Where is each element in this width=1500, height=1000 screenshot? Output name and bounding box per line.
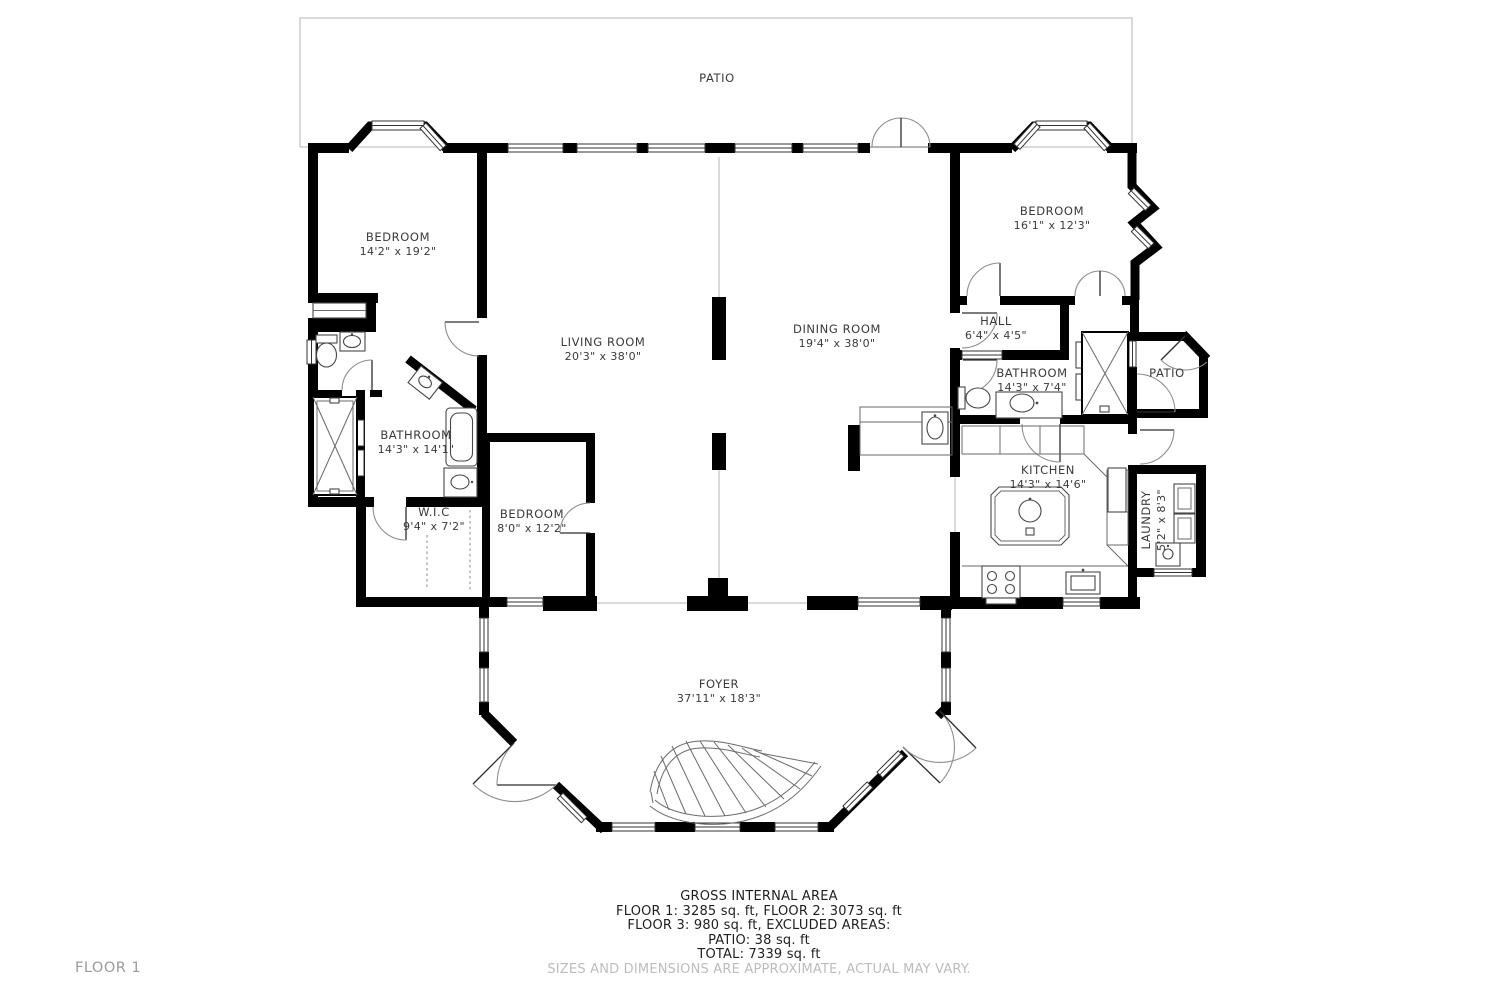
vanity-sink-icon (996, 392, 1062, 418)
room-dims-laundry: 5'2" x 8'3" (1155, 489, 1168, 551)
room-label-laundry: LAUNDRY (1139, 490, 1153, 549)
room-label-bedroom-right: BEDROOM (1020, 204, 1084, 218)
area-summary: GROSS INTERNAL AREA FLOOR 1: 3285 sq. ft… (0, 890, 1500, 978)
floor-number-label: FLOOR 1 (75, 960, 141, 976)
floor-plan-canvas: PATIO BEDROOM 14'2" x 19'2" LIVING ROOM … (0, 0, 1500, 1000)
room-dims-bathroom-left: 14'3" x 14'1" (378, 443, 455, 456)
room-label-bathroom-left: BATHROOM (380, 428, 451, 442)
room-label-foyer: FOYER (699, 677, 739, 691)
total-area: TOTAL: 7339 sq. ft (18, 948, 1500, 963)
room-label-dining: DINING ROOM (793, 322, 881, 336)
shower-icon (1082, 332, 1128, 415)
room-dims-living: 20'3" x 38'0" (565, 350, 642, 363)
room-dims-bathroom-right: 14'3" x 7'4" (997, 381, 1066, 394)
room-label-bedroom-small: BEDROOM (500, 507, 564, 521)
stove-icon (982, 566, 1020, 604)
floor-plan-drawing: PATIO BEDROOM 14'2" x 19'2" LIVING ROOM … (0, 0, 1500, 1000)
room-label-hall: HALL (980, 314, 1012, 328)
room-label-bathroom-right: BATHROOM (996, 366, 1067, 380)
room-dims-dining: 19'4" x 38'0" (799, 337, 876, 350)
floor1-floor2-areas: FLOOR 1: 3285 sq. ft, FLOOR 2: 3073 sq. … (18, 905, 1500, 920)
shower-icon (313, 397, 357, 495)
sink-icon (444, 468, 477, 497)
room-label-patio-top: PATIO (699, 71, 735, 85)
room-label-patio-right: PATIO (1149, 366, 1185, 380)
room-dims-bedroom-right: 16'1" x 12'3" (1014, 219, 1091, 232)
sink-icon (340, 332, 365, 351)
size-disclaimer: SIZES AND DIMENSIONS ARE APPROXIMATE, AC… (18, 963, 1500, 978)
staircase-icon (650, 741, 821, 824)
room-dims-wic: 9'4" x 7'2" (403, 520, 465, 533)
room-label-kitchen: KITCHEN (1021, 463, 1075, 477)
gross-internal-area-title: GROSS INTERNAL AREA (18, 890, 1500, 905)
patio-area: PATIO: 38 sq. ft (18, 934, 1500, 949)
toilet-icon (958, 387, 990, 409)
kitchen-island-icon (991, 487, 1069, 545)
room-dims-foyer: 37'11" x 18'3" (677, 692, 761, 705)
room-label-living: LIVING ROOM (561, 335, 646, 349)
kitchen-sink-icon (1066, 569, 1100, 594)
room-label-bedroom-left: BEDROOM (366, 230, 430, 244)
room-dims-bedroom-left: 14'2" x 19'2" (360, 245, 437, 258)
closet-shelf-icon (313, 303, 366, 318)
room-dims-hall: 6'4" x 4'5" (965, 329, 1027, 342)
washer-dryer-icon (1174, 484, 1195, 543)
room-label-wic: W.I.C (418, 505, 450, 519)
toilet-icon (316, 335, 337, 367)
room-dims-kitchen: 14'3" x 14'6" (1010, 478, 1087, 491)
floor3-excluded-areas: FLOOR 3: 980 sq. ft, EXCLUDED AREAS: (18, 919, 1500, 934)
vanity-sink-icon (408, 366, 442, 399)
counter-peninsula (860, 407, 952, 455)
room-dims-bedroom-small: 8'0" x 12'2" (497, 522, 566, 535)
